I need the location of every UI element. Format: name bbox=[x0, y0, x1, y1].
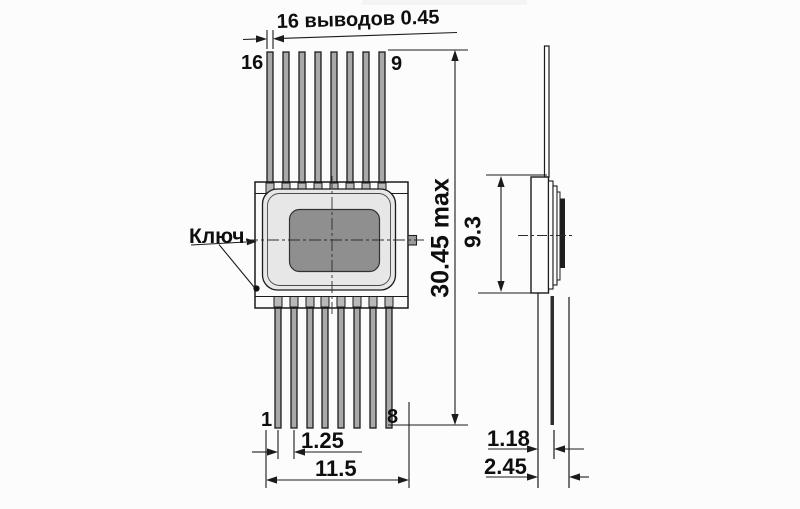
side-step-1 bbox=[549, 181, 554, 289]
dim-overall-length-label: 30.45 max bbox=[429, 178, 454, 298]
key-dot bbox=[253, 285, 259, 291]
side-view bbox=[518, 46, 574, 488]
side-lid-edge bbox=[560, 199, 566, 269]
package-lid bbox=[290, 210, 380, 272]
top-leads bbox=[267, 52, 385, 183]
side-bottom-leads bbox=[538, 293, 569, 488]
dim-lead-width bbox=[243, 30, 457, 49]
technical-drawing-canvas: 16 выводов 0.45 16 9 1 8 Ключ 30.45 max … bbox=[0, 0, 800, 509]
pin-8-label: 8 bbox=[387, 407, 398, 427]
key-label: Ключ bbox=[189, 226, 244, 247]
dim-lead-plane-inner-label: 1.18 bbox=[487, 428, 530, 450]
package-drawing bbox=[0, 0, 800, 509]
dim-lead-plane-outer-label: 2.45 bbox=[484, 456, 527, 478]
side-top-lead bbox=[545, 46, 550, 177]
pin-1-label: 1 bbox=[261, 410, 272, 430]
bottom-leads bbox=[275, 308, 392, 428]
side-body bbox=[531, 177, 549, 293]
dim-side-height-label: 9.3 bbox=[462, 216, 485, 248]
dim-lead-pitch-label: 1.25 bbox=[301, 430, 344, 452]
lead-note-label: 16 выводов 0.45 bbox=[276, 7, 439, 32]
dim-lead-span-label: 11.5 bbox=[315, 458, 357, 480]
pin-9-label: 9 bbox=[391, 54, 402, 74]
pin-16-label: 16 bbox=[241, 53, 263, 73]
